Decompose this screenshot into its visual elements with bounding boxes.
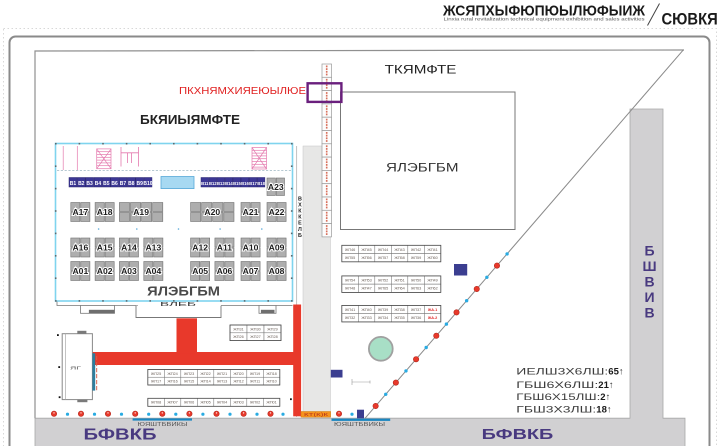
svg-text:A20: A20 [204, 207, 220, 217]
svg-text:В: В [644, 304, 654, 320]
svg-text:B18: B18 [257, 181, 265, 186]
svg-text:Ш: Ш [642, 258, 656, 274]
svg-text:B4: B4 [95, 181, 102, 187]
svg-text:A11: A11 [217, 243, 233, 253]
svg-text:БФВКБ: БФВКБ [482, 427, 554, 443]
svg-text:ЖП33: ЖП33 [361, 316, 371, 320]
svg-text:A03: A03 [121, 266, 137, 276]
svg-text:ЖП28: ЖП28 [267, 335, 277, 339]
svg-text:Е: Е [298, 221, 302, 227]
svg-text:ЖП43: ЖП43 [394, 248, 404, 252]
svg-text:A16: A16 [72, 243, 88, 253]
svg-text:ЖП57: ЖП57 [378, 256, 388, 260]
svg-text:ГБШ6X6ЛШ:21↑: ГБШ6X6ЛШ:21↑ [516, 380, 613, 391]
svg-text:ЖП08: ЖП08 [151, 401, 161, 405]
svg-text:ЖП58: ЖП58 [394, 256, 404, 260]
svg-text:ЯГ: ЯГ [70, 366, 83, 371]
svg-text:ГБШ6X15ЛШ:2↑: ГБШ6X15ЛШ:2↑ [516, 392, 610, 403]
svg-text:A21: A21 [243, 207, 259, 217]
svg-text:ЯЛЭБГБМ: ЯЛЭБГБМ [386, 161, 459, 175]
svg-text:A04: A04 [145, 266, 161, 276]
svg-text:ЖП31: ЖП31 [233, 327, 243, 331]
svg-text:ЖП18: ЖП18 [266, 372, 276, 376]
svg-text:ЖП44: ЖП44 [378, 248, 388, 252]
svg-text:A13: A13 [145, 243, 161, 253]
svg-text:A23: A23 [268, 182, 284, 192]
svg-text:A17: A17 [72, 207, 88, 217]
svg-text:A08: A08 [269, 266, 285, 276]
svg-text:ЖП48: ЖП48 [345, 287, 355, 291]
svg-text:ЖП12: ЖП12 [233, 380, 243, 384]
svg-text:ЖП04: ЖП04 [217, 401, 227, 405]
svg-text:A18: A18 [97, 207, 113, 217]
svg-text:B10: B10 [143, 181, 152, 187]
svg-text:ЖП54: ЖП54 [345, 278, 355, 282]
svg-text:B7: B7 [120, 181, 127, 187]
svg-text:Б: Б [644, 242, 654, 258]
svg-text:ЖП41: ЖП41 [345, 308, 355, 312]
svg-text:B5: B5 [103, 181, 110, 187]
svg-text:A05: A05 [192, 266, 208, 276]
svg-text:ЖП19: ЖП19 [250, 372, 260, 376]
svg-text:ЖП46: ЖП46 [345, 248, 355, 252]
svg-text:БФВКБ: БФВКБ [84, 426, 157, 443]
svg-text:К: К [298, 215, 302, 221]
svg-text:B3: B3 [86, 181, 93, 187]
svg-text:ЖП63: ЖП63 [411, 287, 421, 291]
svg-text:A22: A22 [269, 207, 285, 217]
svg-text:ЖП01: ЖП01 [266, 401, 276, 405]
svg-text:ЖП14: ЖП14 [200, 380, 210, 384]
svg-text:A09: A09 [269, 243, 285, 253]
svg-text:ЖП13: ЖП13 [217, 380, 227, 384]
svg-text:ЖП55: ЖП55 [345, 256, 355, 260]
svg-text:ЖП36: ЖП36 [411, 316, 421, 320]
svg-text:ВЛЕБ: ВЛЕБ [160, 302, 198, 308]
svg-text:Х: Х [298, 202, 302, 208]
svg-text:ЖП17: ЖП17 [151, 380, 161, 384]
svg-text:ЖП34: ЖП34 [378, 316, 388, 320]
svg-text:A10: A10 [243, 243, 259, 253]
svg-text:B11: B11 [201, 181, 209, 186]
svg-text:Linxia rural revitalization te: Linxia rural revitalization technical eq… [444, 16, 646, 22]
svg-text:ЖП53: ЖП53 [361, 278, 371, 282]
svg-text:В: В [298, 196, 302, 202]
svg-text:ЖA.2: ЖA.2 [427, 316, 437, 320]
svg-text:ЖП64: ЖП64 [394, 287, 404, 291]
svg-text:ЖП27: ЖП27 [250, 335, 260, 339]
svg-text:ЖП11: ЖП11 [250, 380, 260, 384]
svg-text:A07: A07 [243, 266, 259, 276]
svg-text:ЖП21: ЖП21 [217, 372, 227, 376]
svg-text:И: И [644, 289, 654, 305]
svg-text:ЖП65: ЖП65 [378, 287, 388, 291]
svg-text:ЖП29: ЖП29 [267, 327, 277, 331]
svg-text:ГБШ3X3ЛШ:18↑: ГБШ3X3ЛШ:18↑ [516, 405, 611, 416]
svg-text:A02: A02 [97, 266, 113, 276]
svg-text:ЖП24: ЖП24 [167, 372, 177, 376]
svg-text:B6: B6 [111, 181, 118, 187]
svg-text:B9: B9 [136, 181, 143, 187]
svg-text:ЖП59: ЖП59 [411, 256, 421, 260]
svg-text:ЖП60: ЖП60 [427, 256, 437, 260]
svg-text:ПКХНЯМХИЯЕЮЫЛЮЕ: ПКХНЯМХИЯЕЮЫЛЮЕ [179, 86, 306, 97]
svg-text:ЖП30: ЖП30 [250, 327, 260, 331]
svg-text:ЖП02: ЖП02 [250, 401, 260, 405]
svg-text:ЖП23: ЖП23 [184, 372, 194, 376]
svg-text:БКЯИЫЯМФТЕ: БКЯИЫЯМФТЕ [140, 113, 240, 127]
svg-text:ЖA.1: ЖA.1 [427, 308, 437, 312]
svg-text:ТКЯМФТЕ: ТКЯМФТЕ [385, 63, 457, 77]
svg-text:ЖП42: ЖП42 [411, 248, 421, 252]
svg-text:ЖП41: ЖП41 [427, 248, 437, 252]
svg-text:ЖП45: ЖП45 [361, 248, 371, 252]
svg-text:ЖП51: ЖП51 [394, 278, 404, 282]
svg-text:A15: A15 [97, 243, 113, 253]
svg-text:СЮВКЯ: СЮВКЯ [662, 11, 718, 29]
svg-text:ЖП49: ЖП49 [427, 278, 437, 282]
svg-text:ЖП32: ЖП32 [345, 316, 355, 320]
svg-text:ЯЛЭБГБМ: ЯЛЭБГБМ [147, 283, 220, 298]
svg-text:ЖП47: ЖП47 [361, 287, 371, 291]
svg-text:ЖП25: ЖП25 [151, 372, 161, 376]
svg-text:ЖП50: ЖП50 [411, 278, 421, 282]
svg-text:ЖП10: ЖП10 [266, 380, 276, 384]
svg-text:ЖП38: ЖП38 [394, 308, 404, 312]
svg-text:ЖП05: ЖП05 [200, 401, 210, 405]
svg-text:ЖП62: ЖП62 [427, 287, 437, 291]
svg-text:ЖП39: ЖП39 [378, 308, 388, 312]
svg-text:ЖП56: ЖП56 [361, 256, 371, 260]
svg-text:ЖП15: ЖП15 [184, 380, 194, 384]
svg-text:Б: Б [298, 233, 302, 239]
svg-text:Л: Л [298, 227, 302, 233]
svg-text:ЖП52: ЖП52 [378, 278, 388, 282]
svg-text:A01: A01 [72, 266, 88, 276]
svg-text:ЖП37: ЖП37 [411, 308, 421, 312]
svg-text:ЖП06: ЖП06 [184, 401, 194, 405]
svg-text:ЮЯШТБВИКЫ: ЮЯШТБВИКЫ [334, 422, 386, 428]
svg-text:B2: B2 [78, 181, 85, 187]
svg-text:ЖП35: ЖП35 [394, 316, 404, 320]
svg-text:A06: A06 [217, 266, 233, 276]
svg-text:ЖП40: ЖП40 [361, 308, 371, 312]
svg-text:B8: B8 [128, 181, 135, 187]
svg-text:ЖП22: ЖП22 [200, 372, 210, 376]
svg-text:КТ(К)К: КТ(К)К [304, 412, 329, 417]
svg-text:В: В [644, 273, 654, 289]
svg-text:B1: B1 [70, 181, 77, 187]
svg-text:ЖП16: ЖП16 [167, 380, 177, 384]
svg-text:A19: A19 [133, 207, 149, 217]
svg-text:К: К [298, 209, 302, 215]
svg-text:ИЕЛШ3X6ЛШ:65↑: ИЕЛШ3X6ЛШ:65↑ [516, 367, 623, 378]
svg-text:A14: A14 [121, 243, 137, 253]
svg-text:ЖП26: ЖП26 [233, 335, 243, 339]
svg-text:ЖП20: ЖП20 [233, 372, 243, 376]
svg-text:A12: A12 [192, 243, 208, 253]
svg-text:ЖП07: ЖП07 [167, 401, 177, 405]
svg-text:ЖП03: ЖП03 [233, 401, 243, 405]
